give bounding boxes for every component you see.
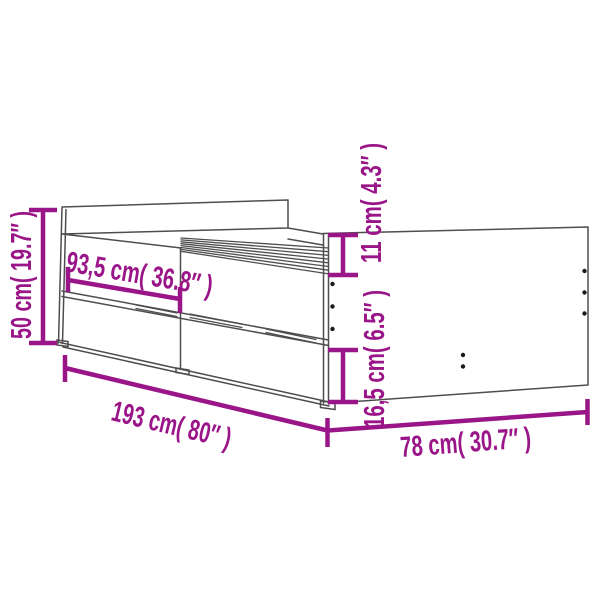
dim-drawer-front-height-label: 16,5 cm( 6.5″ ) bbox=[359, 290, 391, 428]
screw-hole-dot bbox=[582, 269, 586, 273]
dim-overall-height-label: 50 cm( 19.7″ ) bbox=[6, 211, 38, 339]
screw-hole-dot bbox=[461, 364, 465, 368]
screw-hole-dot bbox=[330, 327, 334, 331]
screw-hole-dot bbox=[582, 290, 586, 294]
bed-frame-line-art: 50 cm( 19.7″ ) 93,5 cm( 36.8″ ) 11 cm( 4… bbox=[0, 0, 600, 600]
screw-hole-dot bbox=[330, 304, 334, 308]
product-dimension-diagram: 50 cm( 19.7″ ) 93,5 cm( 36.8″ ) 11 cm( 4… bbox=[0, 0, 600, 600]
screw-hole-dot bbox=[582, 311, 586, 315]
screw-hole-dot bbox=[461, 353, 465, 357]
screw-hole-dot bbox=[330, 282, 334, 286]
diagram-background bbox=[0, 0, 600, 600]
dim-footboard-above-base-label: 11 cm( 4.3″ ) bbox=[356, 143, 388, 263]
